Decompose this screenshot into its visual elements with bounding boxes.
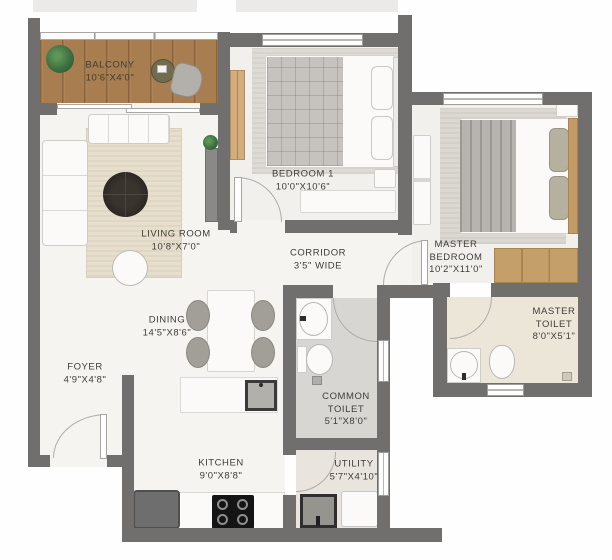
room-name: FOYER bbox=[64, 361, 107, 374]
washbasin-faucet bbox=[462, 373, 466, 380]
room-label-balcony: BALCONY 10'6"X4'0" bbox=[85, 59, 134, 84]
balcony-table-tray bbox=[157, 65, 167, 73]
room-name: BEDROOM 1 bbox=[272, 168, 334, 181]
utility-ventilator bbox=[378, 452, 389, 496]
wall-balcony-bottom-right bbox=[200, 103, 218, 115]
accent-chair bbox=[112, 250, 148, 286]
master-headboard bbox=[568, 118, 578, 234]
wall-foyer-bottom-right bbox=[107, 455, 134, 467]
balcony-sliding-door bbox=[126, 108, 200, 113]
master-blanket bbox=[460, 120, 516, 232]
room-name: MASTER TOILET bbox=[524, 306, 584, 331]
dining-chair bbox=[186, 337, 210, 368]
room-label-utility: UTILITY 5'7"X4'10" bbox=[330, 458, 379, 483]
room-name: UTILITY bbox=[330, 458, 379, 471]
master-wardrobe bbox=[494, 248, 578, 283]
wall-corridor-bottom-right bbox=[377, 285, 445, 298]
wall-master-bottom-right bbox=[491, 283, 592, 297]
wall-foyer-bottom-left bbox=[28, 455, 50, 467]
wall-outer-left bbox=[28, 18, 40, 467]
room-label-master-bedroom: MASTER BEDROOM 10'2"X11'0" bbox=[419, 239, 493, 277]
balcony-railing bbox=[40, 32, 218, 40]
kitchen-sink-faucet bbox=[259, 383, 263, 387]
room-label-kitchen: KITCHEN 9'0"X8'8" bbox=[198, 457, 244, 482]
room-label-foyer: FOYER 4'9"X4'8" bbox=[64, 361, 107, 386]
toilet-wc bbox=[306, 344, 333, 375]
room-dims: 5'1"X8'0" bbox=[314, 416, 378, 429]
room-label-common-toilet: COMMON TOILET 5'1"X8'0" bbox=[314, 391, 378, 429]
room-label-bedroom-1: BEDROOM 1 10'0"X10'6" bbox=[272, 168, 334, 193]
wall-balcony-bottom-left bbox=[40, 103, 57, 115]
wall-bedroom1-right bbox=[398, 15, 412, 235]
entrance-door-leaf bbox=[100, 414, 107, 459]
toilet-wc bbox=[489, 345, 515, 379]
master-toilet-window bbox=[487, 384, 524, 396]
wall-kitchen-toilet-shared-lower bbox=[283, 495, 296, 528]
master-cupboard bbox=[413, 135, 431, 225]
master-pillow bbox=[549, 176, 569, 220]
wall-bottom bbox=[122, 528, 442, 542]
slab-shadow-right bbox=[236, 0, 398, 12]
plant-icon bbox=[46, 45, 74, 73]
wall-toilet-utility-divider bbox=[283, 438, 390, 450]
washing-machine bbox=[341, 491, 378, 527]
room-name: CORRIDOR bbox=[290, 247, 346, 260]
room-dims: 4'9"X4'8" bbox=[64, 374, 107, 387]
room-name: BALCONY bbox=[85, 59, 134, 72]
room-label-corridor: CORRIDOR 3'5" WIDE bbox=[290, 247, 346, 272]
hob bbox=[212, 495, 254, 529]
fridge bbox=[133, 490, 180, 529]
room-dims: 14'5"X8'6" bbox=[143, 327, 192, 340]
tv-plant-icon bbox=[203, 135, 218, 150]
bedroom1-blanket bbox=[267, 57, 343, 166]
dining-chair bbox=[251, 337, 275, 368]
room-dims: 10'2"X11'0" bbox=[419, 264, 493, 277]
room-name: KITCHEN bbox=[198, 457, 244, 470]
wall-master-toilet-left bbox=[433, 283, 447, 395]
hob-burner bbox=[237, 499, 248, 510]
bedroom1-pillow bbox=[371, 116, 393, 160]
balcony-sliding-door bbox=[57, 104, 132, 109]
room-dims: 3'5" WIDE bbox=[290, 260, 346, 273]
wall-balcony-divider bbox=[218, 32, 230, 230]
floor-drain bbox=[312, 376, 322, 385]
room-dims: 10'0"X10'6" bbox=[272, 181, 334, 194]
slab-shadow-left bbox=[33, 0, 197, 12]
wall-kitchen-toilet-shared bbox=[283, 285, 296, 455]
hob-burner bbox=[217, 514, 228, 525]
room-name: MASTER BEDROOM bbox=[419, 239, 493, 264]
room-name: DINING bbox=[143, 314, 192, 327]
floor-drain bbox=[562, 372, 572, 381]
room-dims: 9'0"X8'8" bbox=[198, 470, 244, 483]
washbasin-faucet bbox=[300, 316, 306, 321]
room-name: LIVING ROOM bbox=[141, 228, 210, 241]
master-bedroom-window bbox=[443, 93, 543, 105]
room-dims: 10'6"X4'0" bbox=[85, 72, 134, 85]
master-pillow bbox=[549, 128, 569, 172]
sofa-top bbox=[88, 114, 170, 144]
floor-plan: BALCONY 10'6"X4'0" BEDROOM 1 10'0"X10'6"… bbox=[0, 0, 612, 560]
wall-master-right bbox=[578, 92, 592, 397]
coffee-table bbox=[103, 172, 148, 217]
wall-kitchen-left bbox=[122, 375, 134, 528]
room-name: COMMON TOILET bbox=[314, 391, 378, 416]
hob-burner bbox=[237, 514, 248, 525]
wall-bedroom1-bottom-right bbox=[285, 220, 398, 233]
room-label-living-room: LIVING ROOM 10'8"X7'0" bbox=[141, 228, 210, 253]
room-label-dining: DINING 14'5"X8'6" bbox=[143, 314, 192, 339]
bedroom1-window bbox=[262, 34, 363, 46]
dining-table bbox=[207, 290, 255, 372]
bedroom1-nightstand bbox=[374, 169, 396, 188]
tv-console bbox=[205, 148, 218, 222]
common-toilet-ventilator bbox=[378, 340, 389, 382]
sofa-left bbox=[42, 140, 88, 246]
room-dims: 5'7"X4'10" bbox=[330, 471, 379, 484]
utility-sink-faucet bbox=[316, 516, 320, 526]
room-dims: 8'0"X5'1" bbox=[524, 331, 584, 344]
bedroom1-wardrobe bbox=[230, 70, 245, 160]
room-label-master-toilet: MASTER TOILET 8'0"X5'1" bbox=[524, 306, 584, 344]
bedroom1-pillow bbox=[371, 66, 393, 110]
dining-chair bbox=[251, 300, 275, 331]
room-dims: 10'8"X7'0" bbox=[141, 241, 210, 254]
hob-burner bbox=[217, 499, 228, 510]
bedroom1-door-leaf bbox=[234, 177, 242, 222]
